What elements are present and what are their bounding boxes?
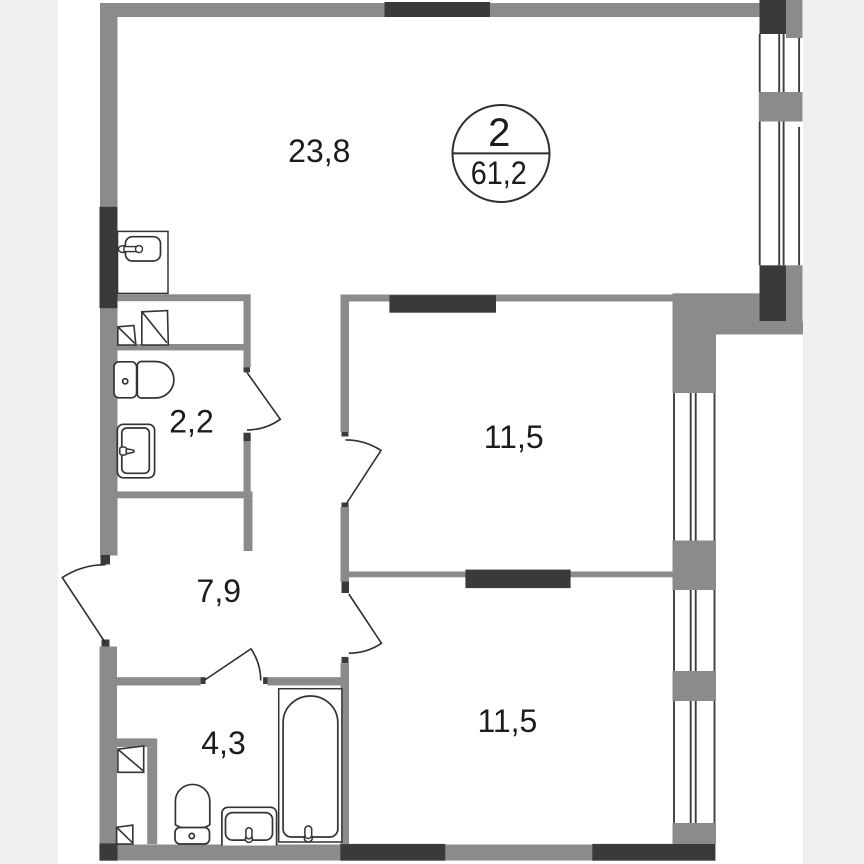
svg-text:4,3: 4,3 bbox=[201, 725, 245, 761]
svg-text:23,8: 23,8 bbox=[288, 133, 350, 169]
svg-text:11,5: 11,5 bbox=[477, 703, 537, 739]
svg-text:7,9: 7,9 bbox=[197, 573, 241, 609]
svg-text:11,5: 11,5 bbox=[484, 419, 544, 455]
svg-text:2: 2 bbox=[488, 111, 510, 155]
svg-text:2,2: 2,2 bbox=[169, 404, 213, 440]
svg-text:61,2: 61,2 bbox=[471, 155, 527, 191]
